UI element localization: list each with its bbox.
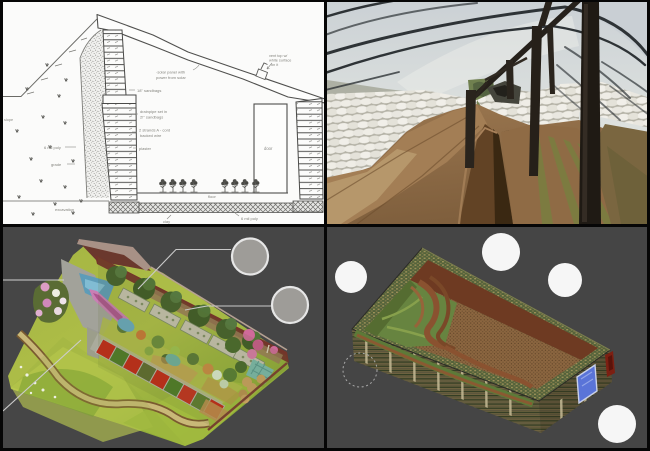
svg-text:on it: on it (271, 63, 279, 67)
svg-text:drainpipe set in: drainpipe set in (140, 109, 167, 114)
svg-text:grade: grade (51, 162, 62, 167)
svg-text:2!" sandbags: 2!" sandbags (140, 114, 163, 119)
svg-text:6 mil poly: 6 mil poly (241, 216, 258, 221)
svg-text:white surface: white surface (269, 59, 291, 63)
svg-text:vent top w/: vent top w/ (269, 54, 288, 58)
svg-text:floor: floor (208, 194, 216, 199)
svg-text:excavation: excavation (55, 207, 74, 212)
svg-text:18" sandbags: 18" sandbags (137, 88, 161, 93)
svg-text:clay: clay (163, 219, 170, 224)
svg-text:backed wire: backed wire (140, 133, 162, 138)
svg-text:slope: slope (4, 118, 13, 122)
svg-text:plaster: plaster (139, 146, 152, 151)
svg-text:door: door (264, 146, 273, 151)
svg-text:·solar panel with: ·solar panel with (156, 70, 185, 75)
svg-text:power from solar: power from solar (156, 75, 186, 80)
svg-text:2 strands A - cord: 2 strands A - cord (139, 128, 170, 133)
svg-text:6 mil poly: 6 mil poly (44, 145, 61, 150)
